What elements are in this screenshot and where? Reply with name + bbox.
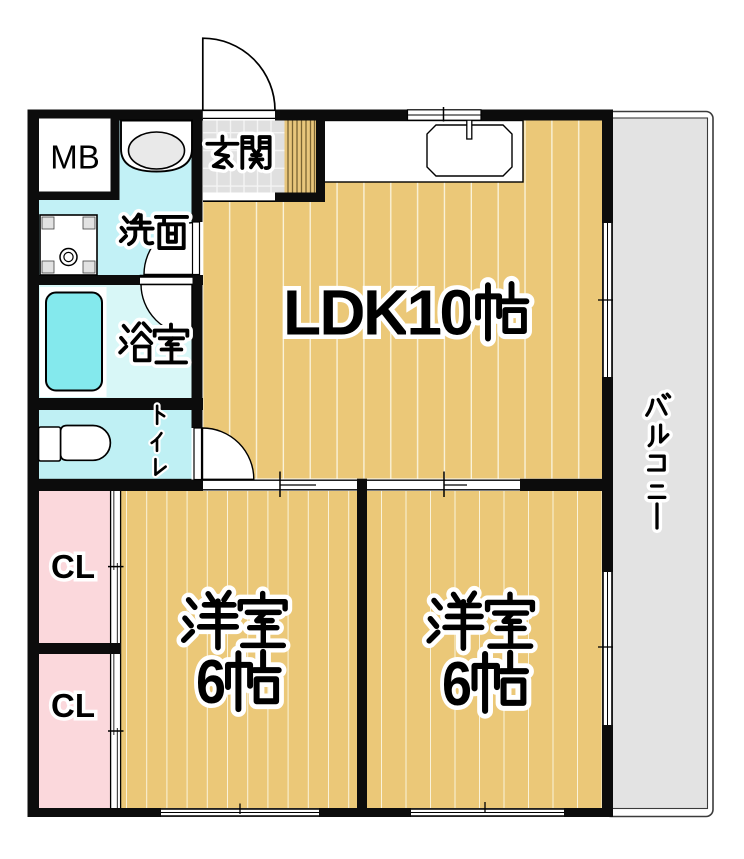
- svg-text:CL: CL: [51, 548, 95, 585]
- svg-text:6: 6: [196, 648, 226, 717]
- svg-text:6: 6: [442, 650, 472, 719]
- svg-text:LDK10: LDK10: [283, 277, 475, 349]
- svg-text:MB: MB: [50, 139, 100, 176]
- svg-text:CL: CL: [51, 687, 95, 724]
